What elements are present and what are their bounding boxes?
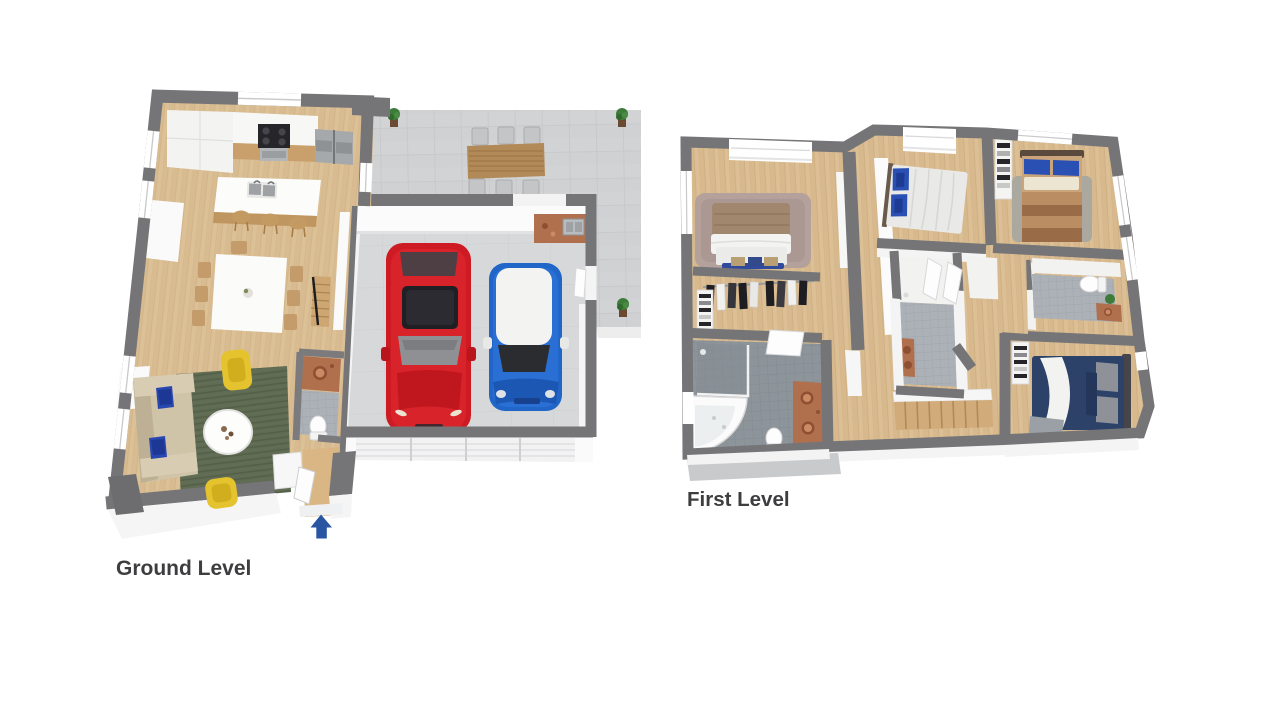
svg-text:First Level: First Level [687,488,790,511]
svg-text:Ground Level: Ground Level [116,557,251,580]
